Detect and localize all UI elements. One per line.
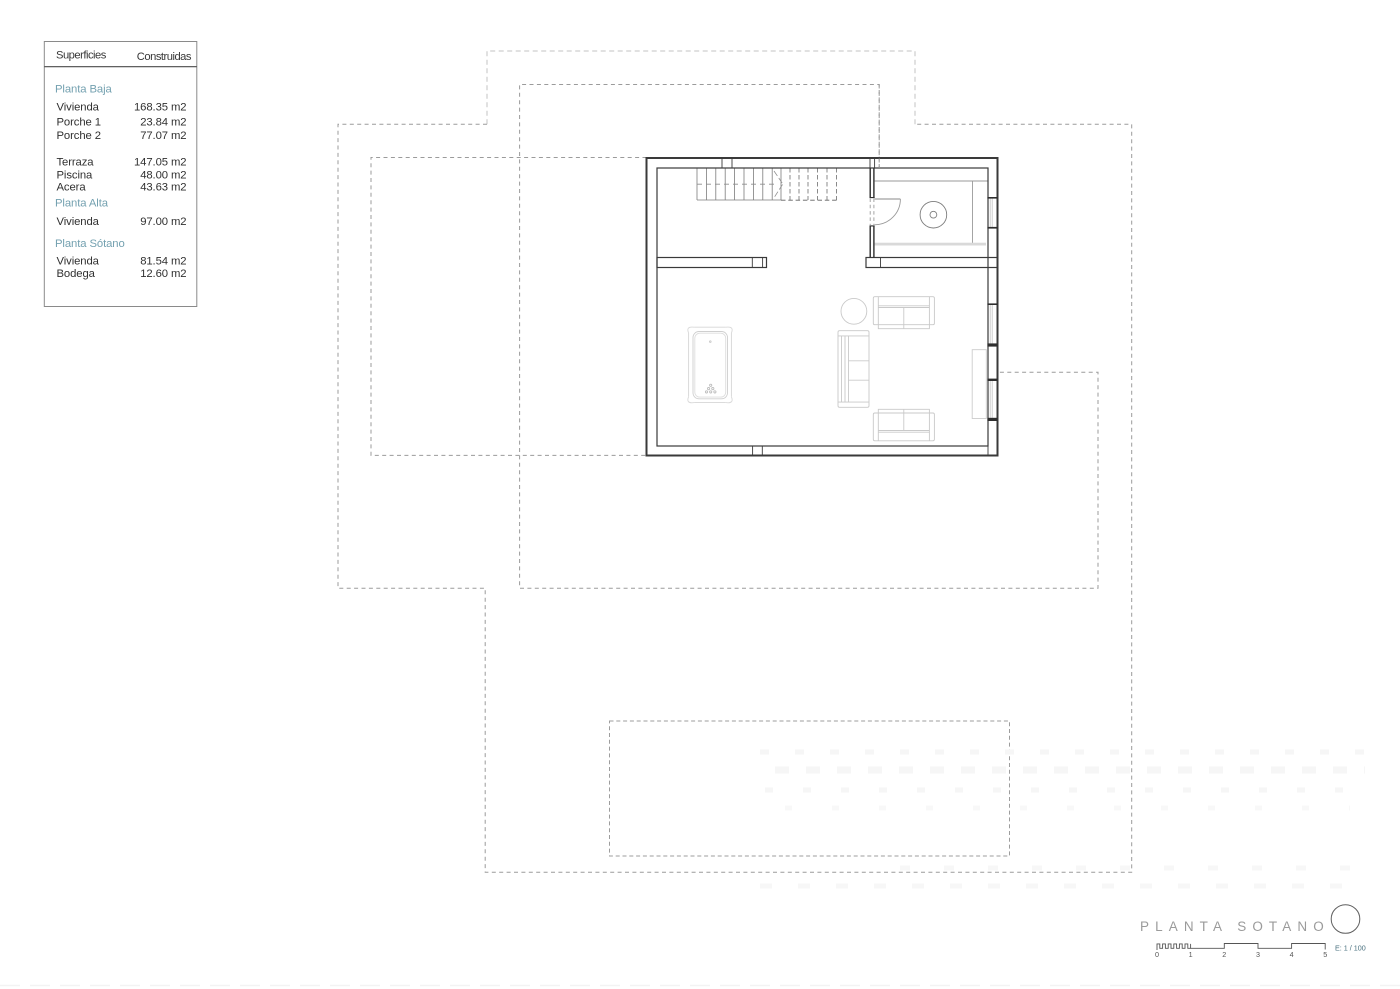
svg-text:147.05 m2: 147.05 m2 (134, 156, 187, 168)
svg-text:1: 1 (1189, 950, 1193, 959)
svg-text:Porche 1: Porche 1 (57, 116, 101, 128)
svg-text:Superficies: Superficies (56, 49, 107, 61)
svg-text:5: 5 (1323, 950, 1327, 959)
svg-text:3: 3 (1256, 950, 1260, 959)
svg-text:12.60 m2: 12.60 m2 (140, 268, 186, 280)
svg-text:168.35 m2: 168.35 m2 (134, 101, 187, 113)
svg-text:PLANTA SOTANO: PLANTA SOTANO (1140, 919, 1330, 934)
svg-text:Piscina: Piscina (57, 169, 94, 181)
svg-text:81.54 m2: 81.54 m2 (140, 255, 186, 267)
svg-text:2: 2 (1222, 950, 1226, 959)
svg-text:Terraza: Terraza (57, 156, 95, 168)
svg-text:43.63 m2: 43.63 m2 (140, 181, 186, 193)
svg-text:E: 1 / 100: E: 1 / 100 (1335, 944, 1366, 953)
svg-text:97.00 m2: 97.00 m2 (140, 216, 186, 228)
svg-text:Vivienda: Vivienda (57, 101, 100, 113)
svg-text:Vivienda: Vivienda (57, 216, 100, 228)
svg-text:Planta Sótano: Planta Sótano (55, 238, 125, 250)
svg-text:Construidas: Construidas (137, 51, 192, 63)
svg-text:Bodega: Bodega (57, 268, 96, 280)
svg-text:77.07 m2: 77.07 m2 (140, 130, 186, 142)
svg-text:23.84 m2: 23.84 m2 (140, 116, 186, 128)
svg-text:48.00 m2: 48.00 m2 (140, 169, 186, 181)
svg-text:4: 4 (1290, 950, 1294, 959)
svg-text:Planta Alta: Planta Alta (55, 197, 109, 209)
svg-text:0: 0 (1155, 950, 1159, 959)
svg-text:Porche 2: Porche 2 (57, 130, 101, 142)
svg-text:Vivienda: Vivienda (57, 255, 100, 267)
svg-text:Planta Baja: Planta Baja (55, 84, 112, 96)
svg-text:Acera: Acera (57, 181, 87, 193)
